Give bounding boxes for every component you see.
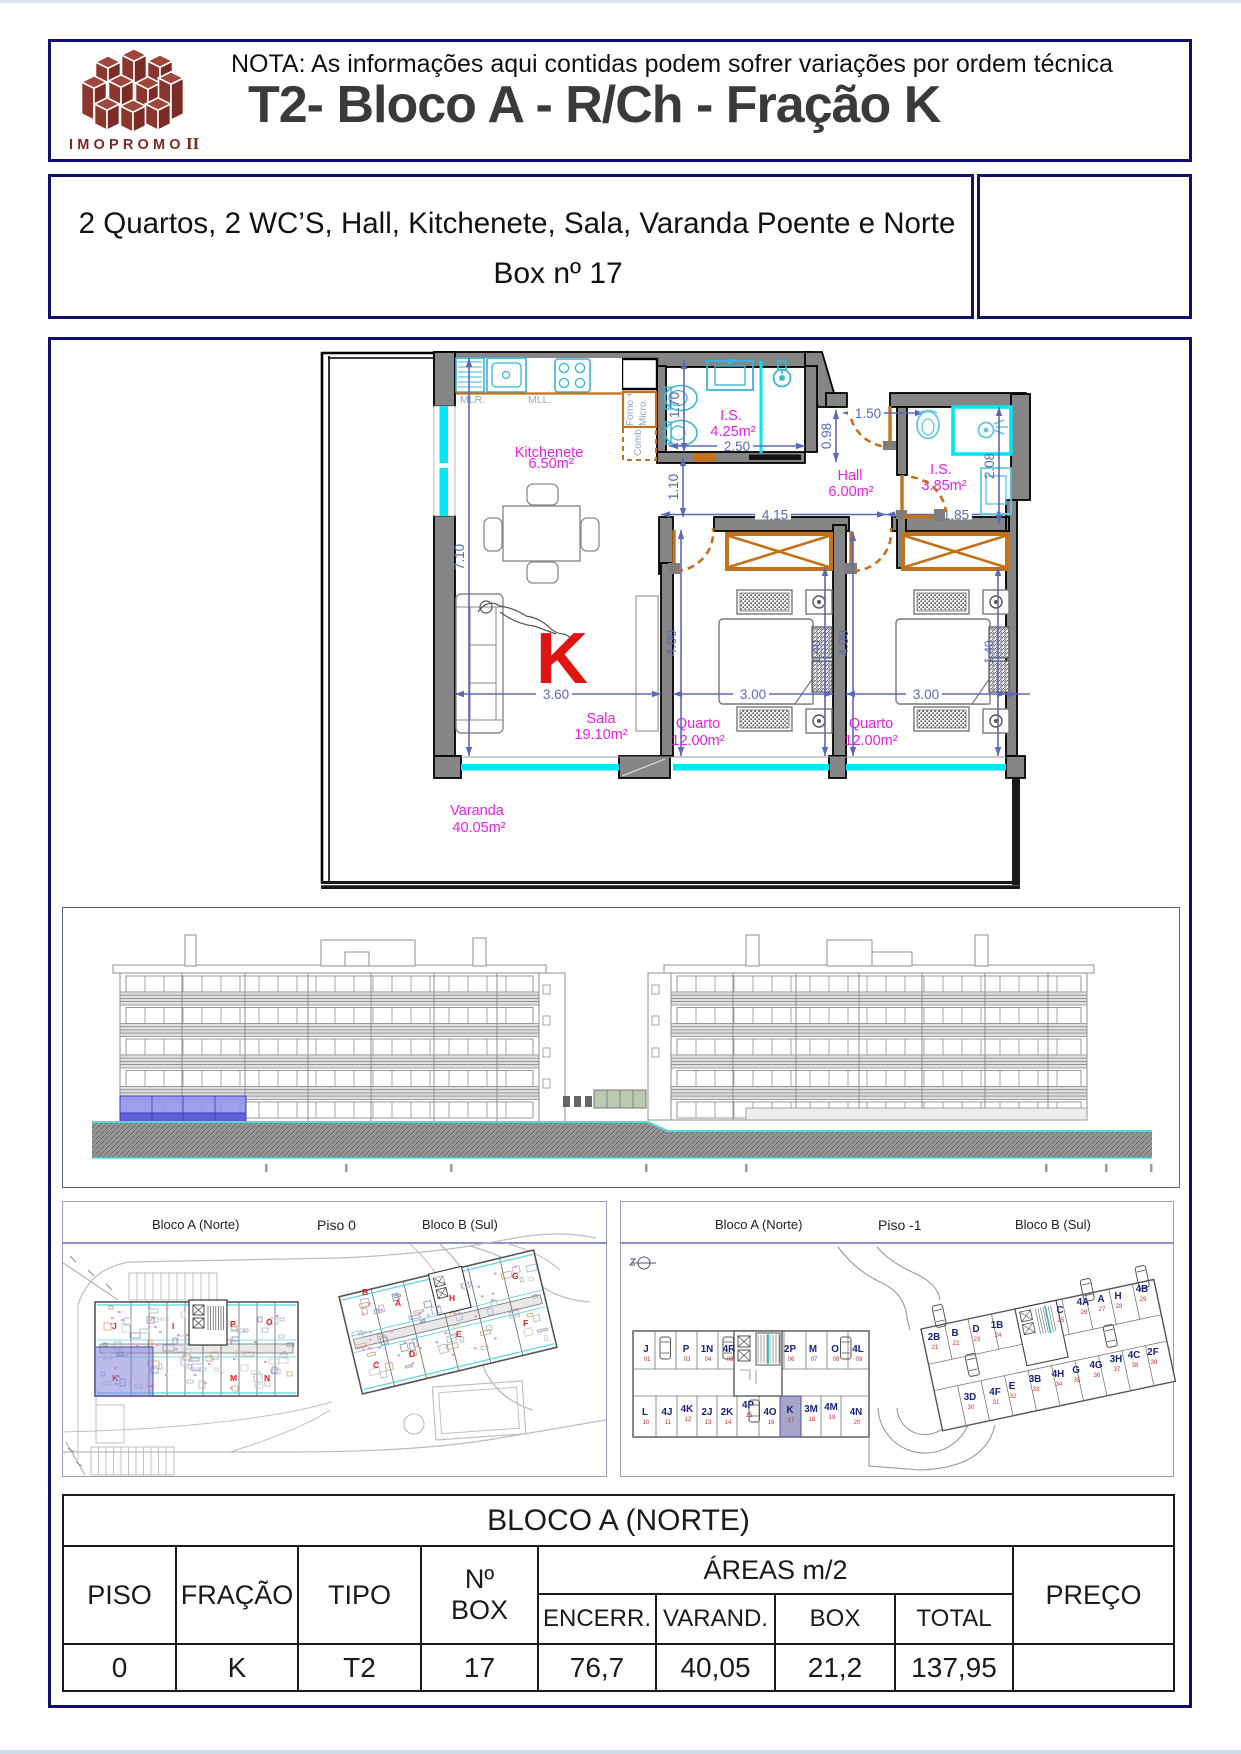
svg-text:L: L bbox=[642, 1407, 648, 1418]
svg-text:10: 10 bbox=[643, 1420, 650, 1426]
svg-text:4.00: 4.00 bbox=[836, 630, 851, 656]
svg-text:Quarto: Quarto bbox=[676, 716, 720, 732]
svg-text:3.00: 3.00 bbox=[913, 687, 939, 702]
svg-text:31: 31 bbox=[993, 1400, 1000, 1406]
svg-text:Sala: Sala bbox=[586, 711, 616, 727]
svg-text:Forno +: Forno + bbox=[625, 391, 636, 426]
svg-text:1B: 1B bbox=[991, 1320, 1004, 1331]
svg-text:4P: 4P bbox=[742, 1400, 754, 1411]
svg-text:4.00: 4.00 bbox=[664, 630, 679, 656]
svg-text:P: P bbox=[683, 1344, 690, 1355]
svg-text:09: 09 bbox=[856, 1357, 863, 1363]
svg-text:E: E bbox=[1009, 1381, 1016, 1392]
svg-text:4O: 4O bbox=[763, 1407, 776, 1418]
svg-text:0.98: 0.98 bbox=[819, 423, 834, 449]
svg-text:4F: 4F bbox=[989, 1387, 1000, 1398]
svg-text:1.70: 1.70 bbox=[667, 392, 682, 418]
svg-text:19: 19 bbox=[829, 1415, 836, 1421]
svg-text:33: 33 bbox=[1033, 1387, 1040, 1393]
svg-text:A: A bbox=[395, 1298, 401, 1308]
svg-text:39: 39 bbox=[1151, 1360, 1158, 1366]
svg-text:35: 35 bbox=[1074, 1378, 1081, 1384]
svg-text:G: G bbox=[1072, 1365, 1080, 1376]
svg-text:Comb.: Comb. bbox=[633, 427, 644, 456]
svg-text:04: 04 bbox=[705, 1357, 712, 1363]
svg-text:3B: 3B bbox=[1029, 1374, 1042, 1385]
svg-text:3.60: 3.60 bbox=[543, 687, 569, 702]
svg-text:18: 18 bbox=[809, 1417, 816, 1423]
svg-text:M: M bbox=[809, 1344, 817, 1355]
svg-text:B: B bbox=[362, 1287, 368, 1297]
svg-text:07: 07 bbox=[811, 1357, 818, 1363]
svg-text:36: 36 bbox=[1094, 1373, 1101, 1379]
svg-text:1.10: 1.10 bbox=[666, 474, 681, 500]
svg-text:F: F bbox=[523, 1318, 528, 1328]
svg-text:2F: 2F bbox=[1147, 1347, 1158, 1358]
svg-text:2J: 2J bbox=[702, 1407, 713, 1418]
svg-text:C: C bbox=[373, 1360, 379, 1370]
svg-text:4R: 4R bbox=[723, 1344, 736, 1355]
svg-text:37: 37 bbox=[1114, 1367, 1121, 1373]
svg-text:21: 21 bbox=[932, 1345, 939, 1351]
svg-text:P: P bbox=[230, 1319, 236, 1329]
svg-text:N: N bbox=[264, 1373, 270, 1383]
svg-text:4J: 4J bbox=[662, 1407, 673, 1418]
svg-text:H: H bbox=[449, 1293, 455, 1303]
svg-text:6.50m²: 6.50m² bbox=[528, 456, 573, 472]
svg-text:32: 32 bbox=[1010, 1394, 1017, 1400]
svg-text:A: A bbox=[1097, 1294, 1104, 1305]
svg-text:I.S.: I.S. bbox=[720, 408, 742, 424]
svg-text:D: D bbox=[972, 1324, 979, 1335]
svg-text:03: 03 bbox=[684, 1357, 691, 1363]
svg-text:2B: 2B bbox=[928, 1332, 941, 1343]
svg-text:2P: 2P bbox=[784, 1344, 796, 1355]
svg-text:3D: 3D bbox=[964, 1392, 977, 1403]
svg-text:3M: 3M bbox=[804, 1404, 818, 1415]
svg-text:J: J bbox=[112, 1321, 117, 1331]
svg-text:C: C bbox=[1056, 1305, 1063, 1316]
svg-text:27: 27 bbox=[1099, 1307, 1106, 1313]
svg-text:15: 15 bbox=[746, 1413, 753, 1419]
svg-text:16: 16 bbox=[768, 1420, 775, 1426]
svg-text:O: O bbox=[831, 1344, 839, 1355]
svg-text:11: 11 bbox=[665, 1420, 672, 1426]
svg-text:12: 12 bbox=[685, 1417, 692, 1423]
svg-text:3.00: 3.00 bbox=[740, 687, 766, 702]
svg-text:4.25m²: 4.25m² bbox=[710, 424, 755, 440]
svg-text:Quarto: Quarto bbox=[849, 716, 893, 732]
svg-text:4M: 4M bbox=[824, 1402, 838, 1413]
svg-text:13: 13 bbox=[705, 1420, 712, 1426]
svg-text:D: D bbox=[409, 1349, 415, 1359]
svg-text:4G: 4G bbox=[1089, 1360, 1102, 1371]
svg-text:4H: 4H bbox=[1052, 1369, 1065, 1380]
svg-text:E: E bbox=[456, 1329, 462, 1339]
svg-text:29: 29 bbox=[1140, 1297, 1147, 1303]
svg-text:06: 06 bbox=[788, 1357, 795, 1363]
svg-text:B: B bbox=[951, 1328, 958, 1339]
svg-text:26: 26 bbox=[1081, 1310, 1088, 1316]
svg-text:05: 05 bbox=[727, 1357, 734, 1363]
svg-text:G: G bbox=[512, 1271, 519, 1281]
svg-text:1.40: 1.40 bbox=[982, 640, 996, 664]
svg-text:4C: 4C bbox=[1128, 1350, 1141, 1361]
svg-text:23: 23 bbox=[974, 1337, 981, 1343]
svg-text:4B: 4B bbox=[1136, 1284, 1149, 1295]
svg-text:34: 34 bbox=[1056, 1382, 1063, 1388]
svg-text:3H: 3H bbox=[1110, 1354, 1123, 1365]
svg-text:3.85m²: 3.85m² bbox=[921, 478, 966, 494]
svg-text:I: I bbox=[172, 1321, 174, 1331]
svg-text:4A: 4A bbox=[1077, 1297, 1090, 1308]
svg-text:38: 38 bbox=[1132, 1363, 1139, 1369]
svg-text:2.50: 2.50 bbox=[724, 439, 750, 454]
svg-text:Hall: Hall bbox=[838, 468, 863, 484]
svg-text:2.08: 2.08 bbox=[982, 453, 997, 479]
svg-text:28: 28 bbox=[1116, 1304, 1123, 1310]
svg-text:MLR.: MLR. bbox=[460, 394, 485, 406]
svg-text:M: M bbox=[230, 1373, 237, 1383]
svg-text:Micro.: Micro. bbox=[638, 399, 649, 426]
svg-text:30: 30 bbox=[968, 1405, 975, 1411]
svg-text:6.00m²: 6.00m² bbox=[828, 484, 873, 500]
svg-text:1N: 1N bbox=[701, 1344, 714, 1355]
svg-text:7.10: 7.10 bbox=[452, 544, 467, 570]
svg-text:40.05m²: 40.05m² bbox=[452, 820, 505, 836]
svg-text:H: H bbox=[1114, 1291, 1121, 1302]
svg-text:24: 24 bbox=[995, 1333, 1002, 1339]
svg-text:O: O bbox=[266, 1317, 273, 1327]
svg-text:01: 01 bbox=[644, 1357, 651, 1363]
svg-text:1.50: 1.50 bbox=[855, 406, 881, 421]
svg-text:4L: 4L bbox=[852, 1344, 863, 1355]
svg-text:12.00m²: 12.00m² bbox=[671, 733, 724, 749]
svg-text:1.40: 1.40 bbox=[809, 640, 823, 664]
svg-text:2K: 2K bbox=[721, 1407, 734, 1418]
svg-text:17: 17 bbox=[788, 1418, 795, 1424]
svg-text:20: 20 bbox=[854, 1420, 861, 1426]
svg-text:08: 08 bbox=[833, 1357, 840, 1363]
svg-text:I.S.: I.S. bbox=[930, 462, 952, 478]
svg-text:K: K bbox=[786, 1405, 793, 1416]
svg-text:22: 22 bbox=[953, 1341, 960, 1347]
svg-text:4.15: 4.15 bbox=[762, 508, 788, 523]
svg-text:4N: 4N bbox=[850, 1407, 863, 1418]
svg-text:Varanda: Varanda bbox=[450, 803, 505, 819]
svg-text:14: 14 bbox=[725, 1420, 732, 1426]
svg-text:19.10m²: 19.10m² bbox=[574, 727, 627, 743]
svg-text:25: 25 bbox=[1058, 1318, 1065, 1324]
svg-text:4K: 4K bbox=[681, 1404, 694, 1415]
svg-text:MLL.: MLL. bbox=[528, 394, 551, 406]
svg-text:J: J bbox=[643, 1344, 648, 1355]
